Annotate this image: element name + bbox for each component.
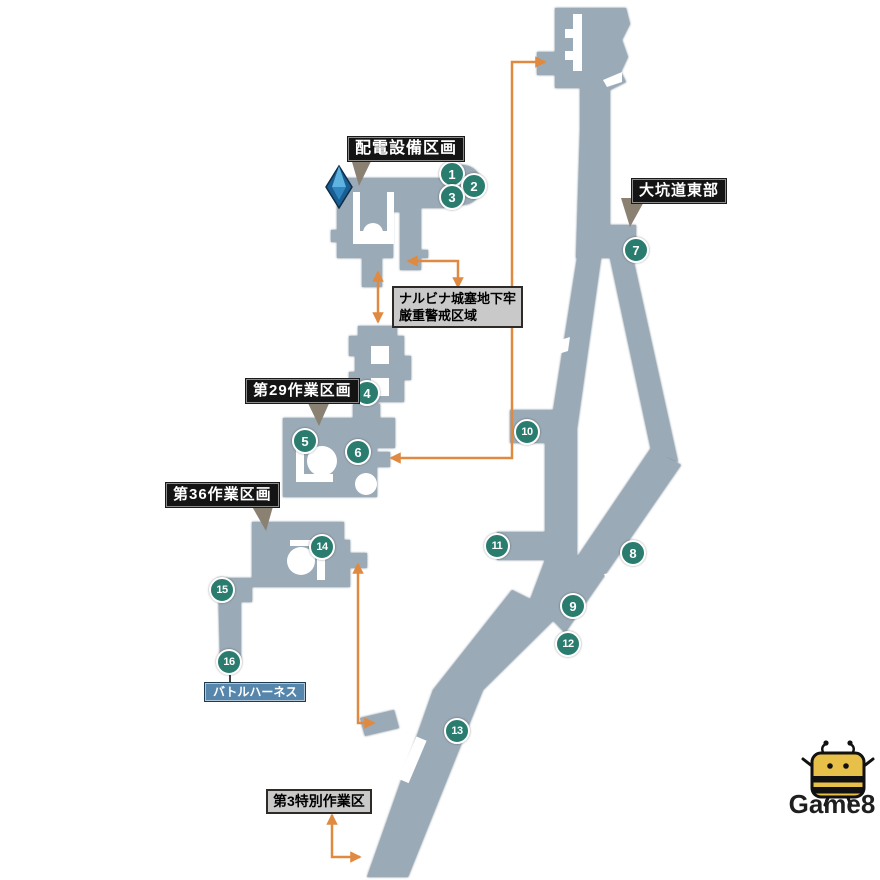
infobox-special-work-3-line1: 第3特別作業区: [273, 793, 365, 810]
map-marker-8: 8: [620, 540, 646, 566]
map-marker-13: 13: [444, 718, 470, 744]
map-right-branch: [610, 258, 678, 462]
map-marker-11: 11: [484, 533, 510, 559]
map-marker-10: 10: [514, 419, 540, 445]
dungeon-map-page: 配電設備区画 大坑道東部 第29作業区画 第36作業区画 ナルビナ城塞地下牢 厳…: [0, 0, 880, 880]
dungeon-map-canvas: [0, 0, 880, 880]
map-marker-15: 15: [209, 577, 235, 603]
map-marker-6: 6: [345, 439, 371, 465]
item-label-battle-harness: バトルハーネス: [204, 682, 306, 702]
arrow-36-to-diagonal: [358, 564, 374, 723]
infobox-special-work-3: 第3特別作業区: [266, 789, 372, 814]
game8-logo-text: Game8: [784, 789, 880, 820]
map-top-exit-room: [537, 8, 630, 140]
map-marker-14: 14: [309, 534, 335, 560]
label-power-section: 配電設備区画: [348, 137, 464, 161]
infobox-nalbina-line2: 厳重警戒区域: [399, 307, 516, 324]
infobox-nalbina-line1: ナルビナ城塞地下牢: [399, 290, 516, 307]
map-marker-12: 12: [555, 631, 581, 657]
arrow-special-work-link: [332, 815, 360, 857]
label-work-section-29: 第29作業区画: [246, 379, 359, 403]
label-tunnel-east: 大坑道東部: [632, 179, 726, 203]
map-marker-7: 7: [623, 237, 649, 263]
map-marker-16: 16: [216, 649, 242, 675]
map-marker-9: 9: [560, 593, 586, 619]
infobox-nalbina-dungeon: ナルビナ城塞地下牢 厳重警戒区域: [392, 286, 523, 328]
label-work-section-36: 第36作業区画: [166, 483, 279, 507]
map-marker-3: 3: [439, 184, 465, 210]
map-marker-5: 5: [292, 428, 318, 454]
